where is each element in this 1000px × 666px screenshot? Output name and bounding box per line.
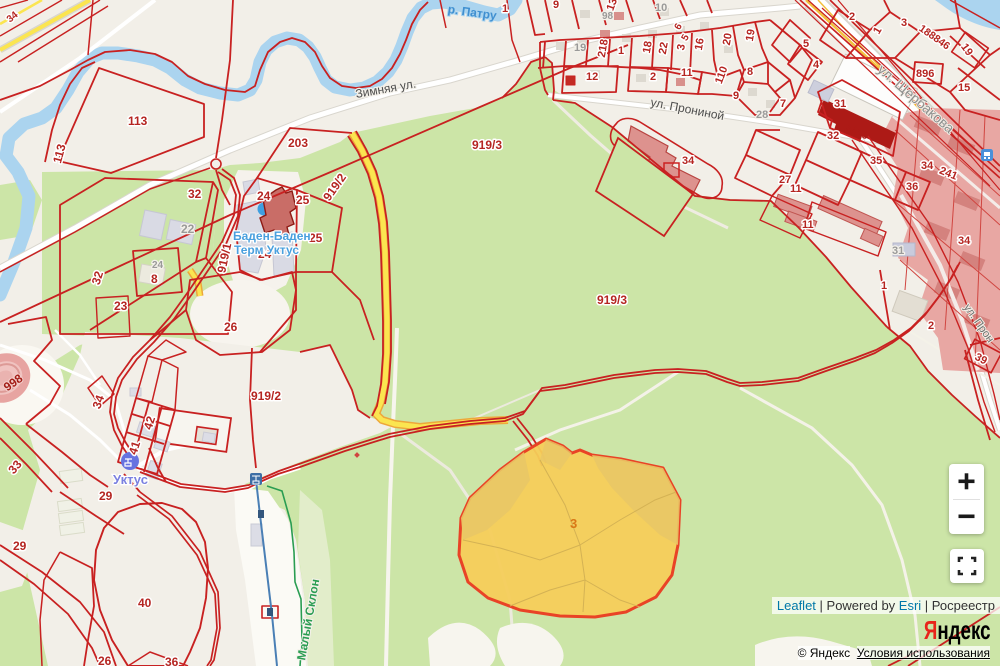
svg-text:16: 16 bbox=[693, 37, 707, 51]
svg-text:15: 15 bbox=[958, 82, 970, 94]
svg-text:29: 29 bbox=[13, 539, 27, 553]
svg-text:11: 11 bbox=[802, 219, 814, 231]
svg-text:34: 34 bbox=[921, 160, 934, 172]
svg-text:24: 24 bbox=[152, 260, 164, 271]
svg-text:29: 29 bbox=[99, 489, 113, 503]
svg-text:28: 28 bbox=[756, 109, 768, 121]
svg-text:8: 8 bbox=[747, 66, 753, 78]
svg-text:31: 31 bbox=[834, 98, 846, 110]
svg-text:24: 24 bbox=[257, 189, 271, 203]
svg-text:919/3: 919/3 bbox=[472, 138, 502, 152]
svg-text:9: 9 bbox=[733, 90, 739, 102]
svg-text:1: 1 bbox=[881, 280, 887, 292]
svg-text:10: 10 bbox=[655, 2, 667, 14]
svg-text:7: 7 bbox=[780, 98, 786, 110]
svg-text:35: 35 bbox=[870, 155, 882, 167]
svg-text:20: 20 bbox=[721, 32, 735, 46]
svg-text:34: 34 bbox=[958, 235, 971, 247]
svg-text:23: 23 bbox=[114, 299, 128, 313]
svg-text:1: 1 bbox=[502, 3, 508, 15]
svg-text:34: 34 bbox=[682, 155, 695, 167]
svg-text:32: 32 bbox=[827, 130, 839, 142]
svg-text:19: 19 bbox=[744, 28, 758, 42]
svg-text:2: 2 bbox=[849, 11, 855, 23]
svg-text:3: 3 bbox=[570, 516, 577, 531]
svg-text:3: 3 bbox=[901, 17, 907, 29]
svg-text:Баден-Баден: Баден-Баден bbox=[233, 229, 311, 243]
svg-text:22: 22 bbox=[657, 41, 671, 55]
svg-text:11: 11 bbox=[790, 183, 802, 195]
svg-text:5: 5 bbox=[803, 38, 809, 50]
svg-text:203: 203 bbox=[288, 136, 308, 150]
svg-text:8: 8 bbox=[151, 272, 158, 286]
svg-text:18: 18 bbox=[641, 40, 655, 54]
svg-text:26: 26 bbox=[224, 320, 238, 334]
svg-text:113: 113 bbox=[128, 114, 148, 128]
svg-text:40: 40 bbox=[138, 596, 152, 610]
svg-text:32: 32 bbox=[188, 187, 202, 201]
svg-text:22: 22 bbox=[181, 222, 195, 236]
svg-text:2: 2 bbox=[928, 320, 934, 332]
svg-text:25: 25 bbox=[296, 193, 310, 207]
svg-text:896: 896 bbox=[916, 68, 934, 80]
svg-text:12: 12 bbox=[586, 71, 598, 83]
svg-text:25: 25 bbox=[309, 231, 323, 245]
svg-text:2: 2 bbox=[650, 71, 656, 83]
svg-text:4: 4 bbox=[813, 59, 820, 71]
svg-text:36: 36 bbox=[165, 655, 179, 666]
svg-text:27: 27 bbox=[779, 174, 791, 186]
svg-text:Терм Уктус: Терм Уктус bbox=[234, 243, 299, 257]
svg-text:36: 36 bbox=[906, 181, 918, 193]
svg-text:9: 9 bbox=[553, 0, 559, 11]
svg-text:919/3: 919/3 bbox=[597, 293, 627, 307]
svg-text:1: 1 bbox=[618, 45, 624, 57]
svg-text:98: 98 bbox=[602, 11, 614, 22]
svg-text:19: 19 bbox=[574, 42, 586, 54]
svg-text:31: 31 bbox=[892, 245, 904, 257]
svg-text:919/2: 919/2 bbox=[251, 389, 281, 403]
svg-text:26: 26 bbox=[98, 654, 112, 666]
svg-text:11: 11 bbox=[681, 67, 693, 79]
svg-text:Уктус: Уктус bbox=[113, 472, 148, 487]
